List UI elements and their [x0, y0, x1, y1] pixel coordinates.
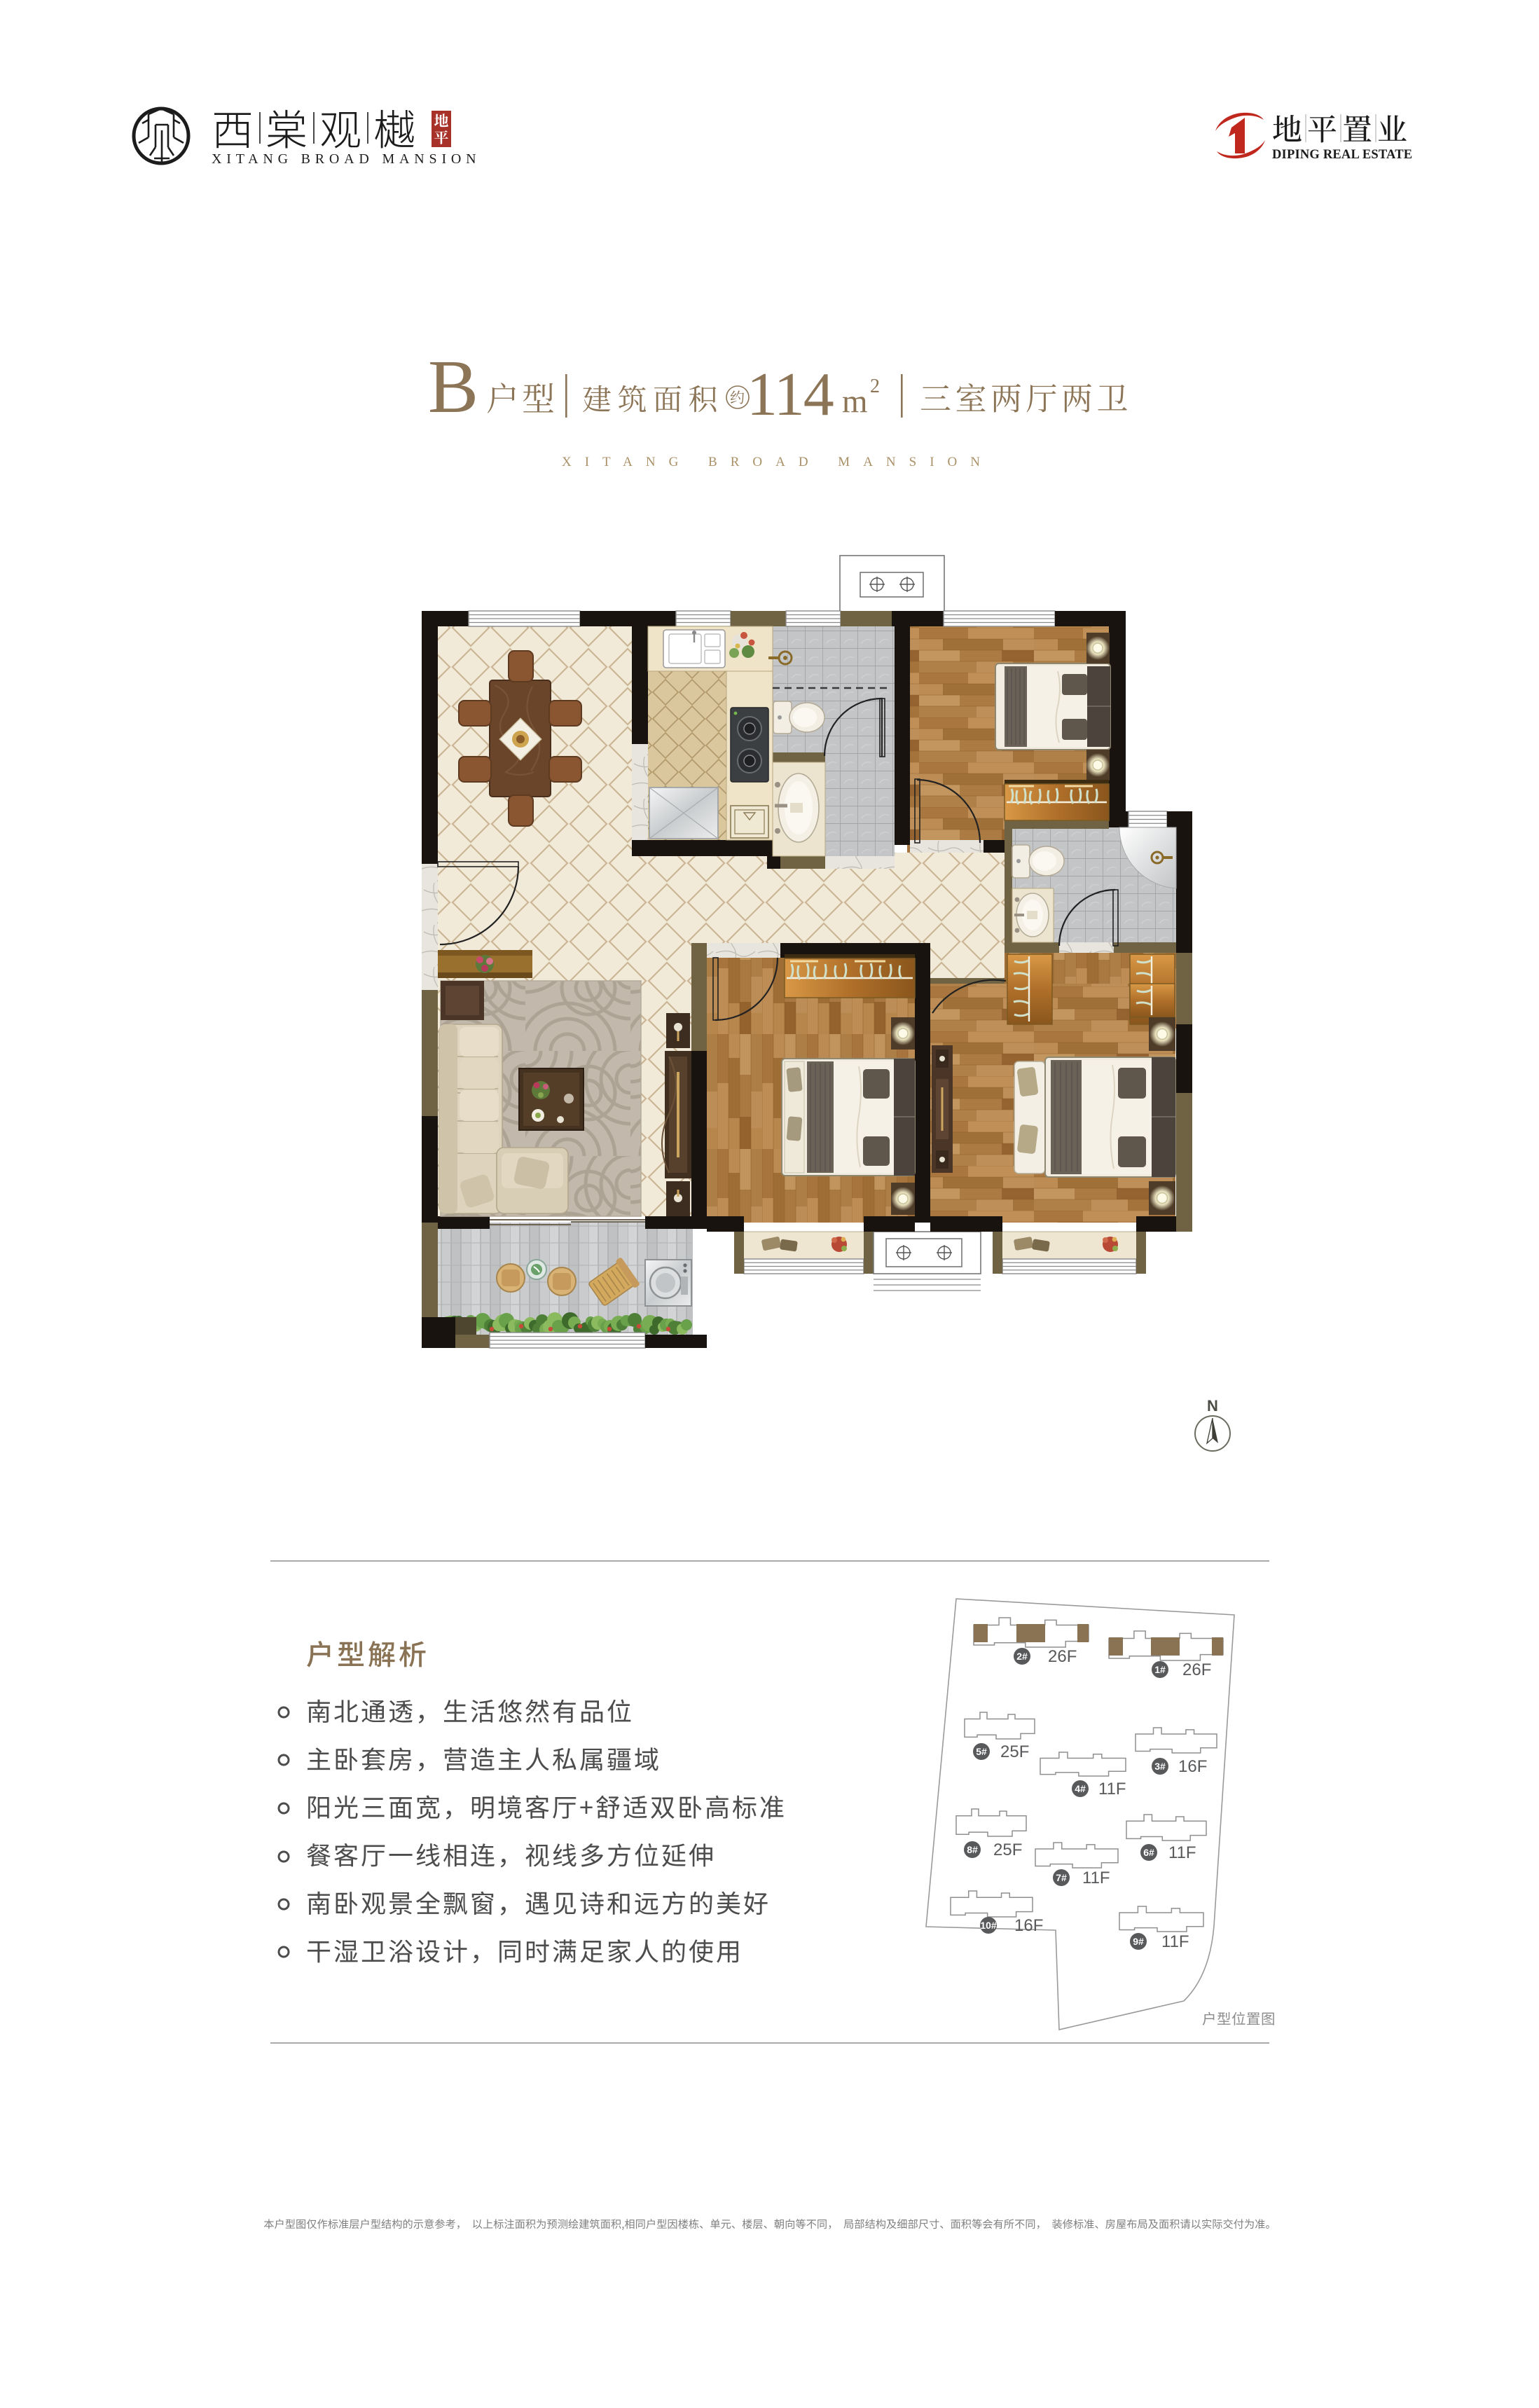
svg-text:8#: 8# [967, 1844, 978, 1855]
svg-text:16F: 16F [1178, 1757, 1207, 1776]
svg-text:11F: 11F [1168, 1843, 1196, 1862]
svg-text:6#: 6# [1143, 1847, 1154, 1858]
svg-text:2: 2 [870, 376, 880, 397]
svg-text:10#: 10# [980, 1920, 997, 1931]
svg-text:XITANG BROAD MANSION: XITANG BROAD MANSION [212, 151, 481, 167]
svg-text:16F: 16F [1014, 1916, 1043, 1935]
svg-text:11F: 11F [1082, 1869, 1110, 1887]
svg-text:DIPING REAL ESTATE: DIPING REAL ESTATE [1272, 148, 1412, 162]
svg-text:11F: 11F [1098, 1780, 1126, 1798]
svg-text:9#: 9# [1133, 1936, 1144, 1947]
svg-text:7#: 7# [1056, 1872, 1067, 1883]
svg-text:B: B [428, 345, 478, 429]
svg-text:11F: 11F [1161, 1932, 1189, 1951]
svg-text:114: 114 [747, 361, 834, 429]
svg-text:25F: 25F [993, 1841, 1022, 1859]
svg-text:26F: 26F [1048, 1647, 1077, 1666]
svg-text:N: N [1207, 1397, 1218, 1415]
svg-text:1#: 1# [1154, 1664, 1166, 1675]
svg-text:26F: 26F [1182, 1660, 1211, 1679]
svg-text:3#: 3# [1154, 1761, 1166, 1772]
svg-text:XITANG BROAD MANSION: XITANG BROAD MANSION [562, 455, 993, 469]
svg-text:5#: 5# [976, 1746, 987, 1757]
svg-text:m: m [842, 383, 868, 420]
svg-text:25F: 25F [1000, 1742, 1029, 1761]
svg-text:2#: 2# [1016, 1651, 1028, 1662]
svg-text:4#: 4# [1075, 1783, 1086, 1794]
